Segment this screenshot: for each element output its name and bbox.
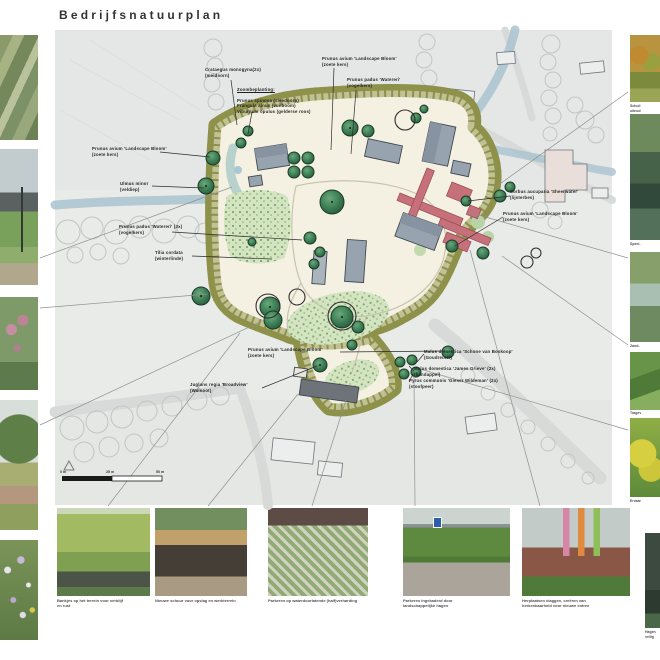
photo-caption: Schuil uitnod (630, 104, 660, 113)
photo-wildflower-meadow (0, 540, 38, 640)
photo-meadow-tree (0, 400, 38, 530)
bedrijfsnatuurplan-page: Bedrijfsnatuurplan Schuil uitnod Speel- … (0, 0, 660, 660)
sketch-rings (256, 110, 541, 330)
photo-flowering-shrub (0, 297, 38, 390)
trees (192, 105, 515, 379)
annotation-malus-boskoop: Malus domestica 'Schone van Boskoop' (Go… (424, 349, 513, 360)
tree-centers (200, 127, 351, 366)
photo-caption: Tragev (630, 411, 660, 416)
photo-caption: Parkeren ingekaderd door landschappelijk… (403, 598, 511, 609)
photo-aerial-region (0, 35, 38, 140)
site-hedge (212, 90, 495, 409)
annotation-malus-james: Malus domestica 'James Grieve' (2x) (han… (414, 366, 496, 377)
annotation-lines (152, 68, 510, 388)
red-buildings (397, 168, 491, 252)
north-arrow-icon (64, 461, 74, 470)
inner-paths (287, 181, 446, 372)
annotation-prunus-avium-right: Prunus avium 'Landscape Bloom' (zoete ke… (503, 211, 578, 222)
photo-caption: Bankjes op het terrein voor verblijf en … (57, 598, 152, 609)
annotation-prunus-avium-top: Prunus avium 'Landscape Bloom' (zoete ke… (322, 56, 397, 67)
photo-caption: Nieuwe schuur voor opslag en werkterrein (155, 598, 249, 603)
annotation-ulmus-minor: Ulmus minor (veldiep) (120, 181, 148, 192)
annotation-prunus-padus-top: Prunus padus 'Watereri' (vogelkers) (347, 77, 401, 88)
annotation-pyrus: Pyrus communis 'Gieser Wildeman' (2x) (s… (409, 378, 498, 389)
annotation-prunus-padus-3x: Prunus padus 'Watereri' (3x) (vogelkers) (119, 224, 182, 235)
annotation-juglans: Juglans regia 'Broadview' (Walnoot) (190, 382, 248, 393)
scale-label-50: 50 m (156, 470, 164, 474)
scale-label-0: 0 m (60, 470, 66, 474)
green-areas (224, 148, 494, 401)
photo-hedge-parking (403, 508, 510, 596)
photo-bench (57, 508, 150, 596)
annotation-sorbus: Sorbus aucuparia 'Sheerwater' (lijsterbe… (510, 189, 579, 200)
photo-grass-pavers (268, 508, 368, 596)
outside-buildings (271, 51, 608, 477)
scale-label-25: 25 m (106, 470, 114, 474)
photo-farmhouse (0, 149, 38, 285)
annotation-tilia-cordata: Tilia cordata (winterlinde) (155, 250, 183, 261)
annotation-zoombeplanting-body: Prunus spinosa (sleedoorn) Frangula alnu… (237, 98, 311, 114)
photo-autumn-trees (630, 35, 660, 102)
photo-fruit-closeup (630, 418, 660, 497)
sketch-trees (56, 34, 604, 484)
photo-caption: Zand- (630, 344, 660, 349)
photo-shrubs (630, 352, 660, 410)
photo-waterside (630, 252, 660, 342)
photo-flags-entrance (522, 508, 630, 596)
photo-caption: Herplaatsen vlaggen, creëren van herkenb… (522, 598, 630, 609)
aerial-backdrop (55, 30, 612, 505)
page-title: Bedrijfsnatuurplan (59, 8, 223, 22)
photo-caption: Ervaar (630, 499, 660, 504)
annotation-zoombeplanting-title: Zoombeplanting: (237, 87, 311, 93)
annotation-crataegus: Crataegus monogyna(2x) (meidoorn) (205, 67, 261, 78)
gray-buildings (248, 122, 471, 403)
annotation-zoombeplanting: Zoombeplanting: Prunus spinosa (sleedoor… (237, 81, 311, 114)
photo-caption: Speel- (630, 242, 660, 247)
photo-caption: Hagen veilig (645, 630, 660, 639)
photo-dark-hedge (645, 533, 660, 628)
photo-pond (630, 114, 660, 240)
photo-caption: Parkeren op waterdoorlatende (half)verha… (268, 598, 370, 603)
annotation-prunus-avium-bottom: Prunus avium 'Landscape Bloom' (zoete ke… (248, 347, 323, 358)
annotation-prunus-avium-left: Prunus avium 'Landscape Bloom' (zoete ke… (92, 146, 167, 157)
photo-barn (155, 508, 247, 596)
